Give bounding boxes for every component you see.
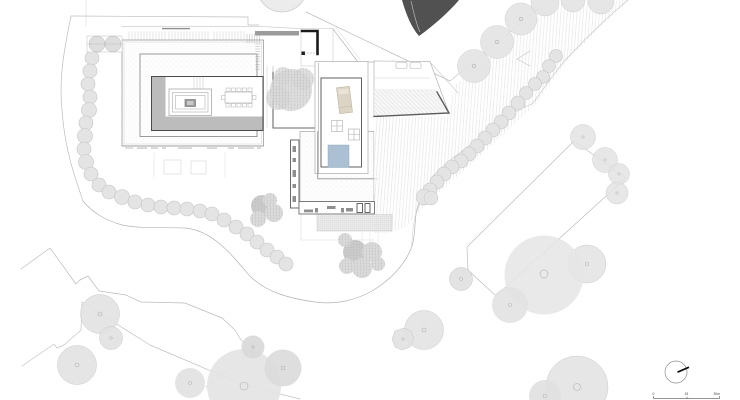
- svg-text:30m: 30m: [714, 392, 721, 396]
- svg-text:0: 0: [653, 392, 655, 396]
- svg-text:15: 15: [685, 392, 689, 396]
